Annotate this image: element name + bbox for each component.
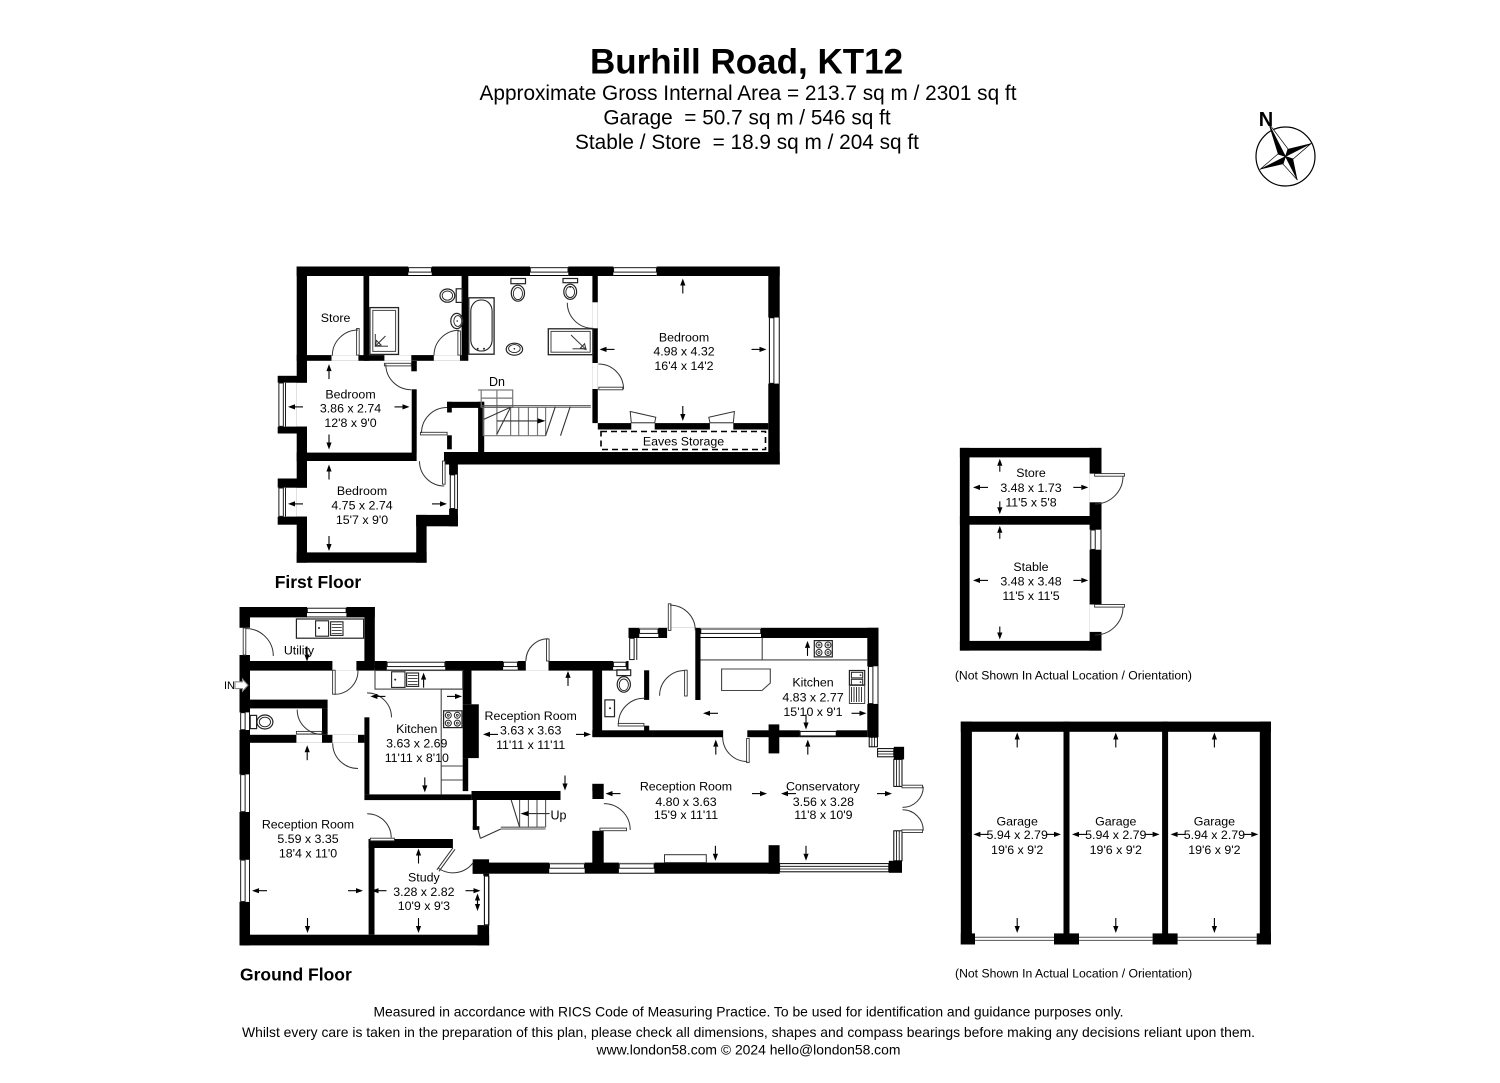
svg-text:Ground Floor: Ground Floor bbox=[240, 965, 352, 985]
svg-text:3.63 x 2.69: 3.63 x 2.69 bbox=[386, 736, 447, 750]
svg-text:Bedroom: Bedroom bbox=[337, 484, 387, 498]
svg-text:Reception Room: Reception Room bbox=[262, 818, 354, 832]
svg-text:10'9 x 9'3: 10'9 x 9'3 bbox=[398, 899, 450, 913]
svg-text:3.28 x 2.82: 3.28 x 2.82 bbox=[393, 885, 454, 899]
svg-text:3.86 x 2.74: 3.86 x 2.74 bbox=[320, 402, 381, 416]
svg-text:Garage: Garage bbox=[1095, 814, 1136, 828]
svg-text:4.75 x 2.74: 4.75 x 2.74 bbox=[331, 498, 392, 512]
svg-text:Kitchen: Kitchen bbox=[396, 722, 437, 736]
svg-text:Utility: Utility bbox=[284, 644, 315, 658]
svg-text:15'10 x 9'1: 15'10 x 9'1 bbox=[783, 705, 842, 719]
svg-text:Stable: Stable bbox=[1013, 560, 1048, 574]
svg-text:Garage: Garage bbox=[1194, 814, 1235, 828]
svg-text:5.94 x 2.79: 5.94 x 2.79 bbox=[1085, 828, 1146, 842]
svg-text:19'6 x 9'2: 19'6 x 9'2 bbox=[991, 843, 1043, 857]
svg-text:Store: Store bbox=[321, 311, 351, 325]
svg-text:www.london58.com © 2024 hello@: www.london58.com © 2024 hello@london58.c… bbox=[596, 1042, 901, 1058]
svg-text:Stable / Store = 18.9 sq m /: Stable / Store = 18.9 sq m / 204 sq ft bbox=[575, 131, 919, 154]
svg-text:3.48 x 1.73: 3.48 x 1.73 bbox=[1000, 481, 1061, 495]
svg-text:5.94 x 2.79: 5.94 x 2.79 bbox=[987, 828, 1048, 842]
svg-text:Approximate Gross Internal Are: Approximate Gross Internal Area = 213.7 … bbox=[480, 82, 1017, 105]
svg-text:4.80 x 3.63: 4.80 x 3.63 bbox=[655, 795, 716, 809]
svg-text:11'5 x 11'5: 11'5 x 11'5 bbox=[1002, 589, 1059, 603]
svg-text:Up: Up bbox=[551, 809, 567, 823]
svg-text:Bedroom: Bedroom bbox=[325, 387, 375, 401]
svg-text:16'4 x 14'2: 16'4 x 14'2 bbox=[654, 359, 713, 373]
svg-text:Eaves Storage: Eaves Storage bbox=[643, 435, 724, 449]
svg-text:11'11 x 11'11: 11'11 x 11'11 bbox=[496, 738, 565, 752]
svg-text:Whilst every care is taken in: Whilst every care is taken in the prepar… bbox=[242, 1024, 1255, 1040]
svg-text:19'6 x 9'2: 19'6 x 9'2 bbox=[1090, 843, 1142, 857]
svg-text:(Not Shown In Actual Location: (Not Shown In Actual Location / Orientat… bbox=[955, 668, 1192, 682]
svg-text:19'6 x 9'2: 19'6 x 9'2 bbox=[1188, 843, 1240, 857]
svg-text:15'9 x 11'11: 15'9 x 11'11 bbox=[654, 808, 718, 822]
svg-text:11'8 x 10'9: 11'8 x 10'9 bbox=[794, 808, 852, 822]
svg-text:11'5 x 5'8: 11'5 x 5'8 bbox=[1005, 495, 1056, 509]
svg-text:18'4 x 11'0: 18'4 x 11'0 bbox=[279, 846, 337, 860]
svg-text:5.94 x 2.79: 5.94 x 2.79 bbox=[1184, 828, 1245, 842]
svg-text:11'11 x 8'10: 11'11 x 8'10 bbox=[385, 751, 449, 765]
svg-text:15'7 x 9'0: 15'7 x 9'0 bbox=[336, 513, 388, 527]
svg-text:First Floor: First Floor bbox=[275, 572, 362, 592]
svg-text:3.48 x 3.48: 3.48 x 3.48 bbox=[1000, 574, 1061, 588]
svg-text:Kitchen: Kitchen bbox=[792, 676, 833, 690]
svg-text:Reception Room: Reception Room bbox=[640, 779, 732, 793]
svg-text:Study: Study bbox=[408, 871, 440, 885]
svg-text:Garage = 50.7 sq m / 546 sq f: Garage = 50.7 sq m / 546 sq ft bbox=[603, 107, 890, 130]
svg-text:3.56 x 3.28: 3.56 x 3.28 bbox=[793, 795, 854, 809]
svg-text:Reception Room: Reception Room bbox=[485, 709, 577, 723]
svg-text:Dn: Dn bbox=[489, 375, 505, 389]
svg-text:Measured in accordance with RI: Measured in accordance with RICS Code of… bbox=[373, 1004, 1123, 1020]
svg-text:(Not Shown In Actual Location: (Not Shown In Actual Location / Orientat… bbox=[955, 967, 1192, 981]
svg-text:4.83 x 2.77: 4.83 x 2.77 bbox=[782, 690, 843, 704]
svg-text:Bedroom: Bedroom bbox=[659, 330, 709, 344]
svg-text:3.63 x 3.63: 3.63 x 3.63 bbox=[500, 723, 561, 737]
svg-text:5.59 x 3.35: 5.59 x 3.35 bbox=[277, 832, 338, 846]
svg-text:IN: IN bbox=[224, 680, 235, 692]
svg-text:12'8 x 9'0: 12'8 x 9'0 bbox=[324, 416, 376, 430]
svg-text:Conservatory: Conservatory bbox=[786, 779, 860, 793]
svg-text:4.98 x 4.32: 4.98 x 4.32 bbox=[653, 345, 714, 359]
svg-text:Garage: Garage bbox=[997, 814, 1038, 828]
svg-text:Store: Store bbox=[1016, 466, 1046, 480]
svg-text:Burhill Road, KT12: Burhill Road, KT12 bbox=[590, 43, 903, 82]
